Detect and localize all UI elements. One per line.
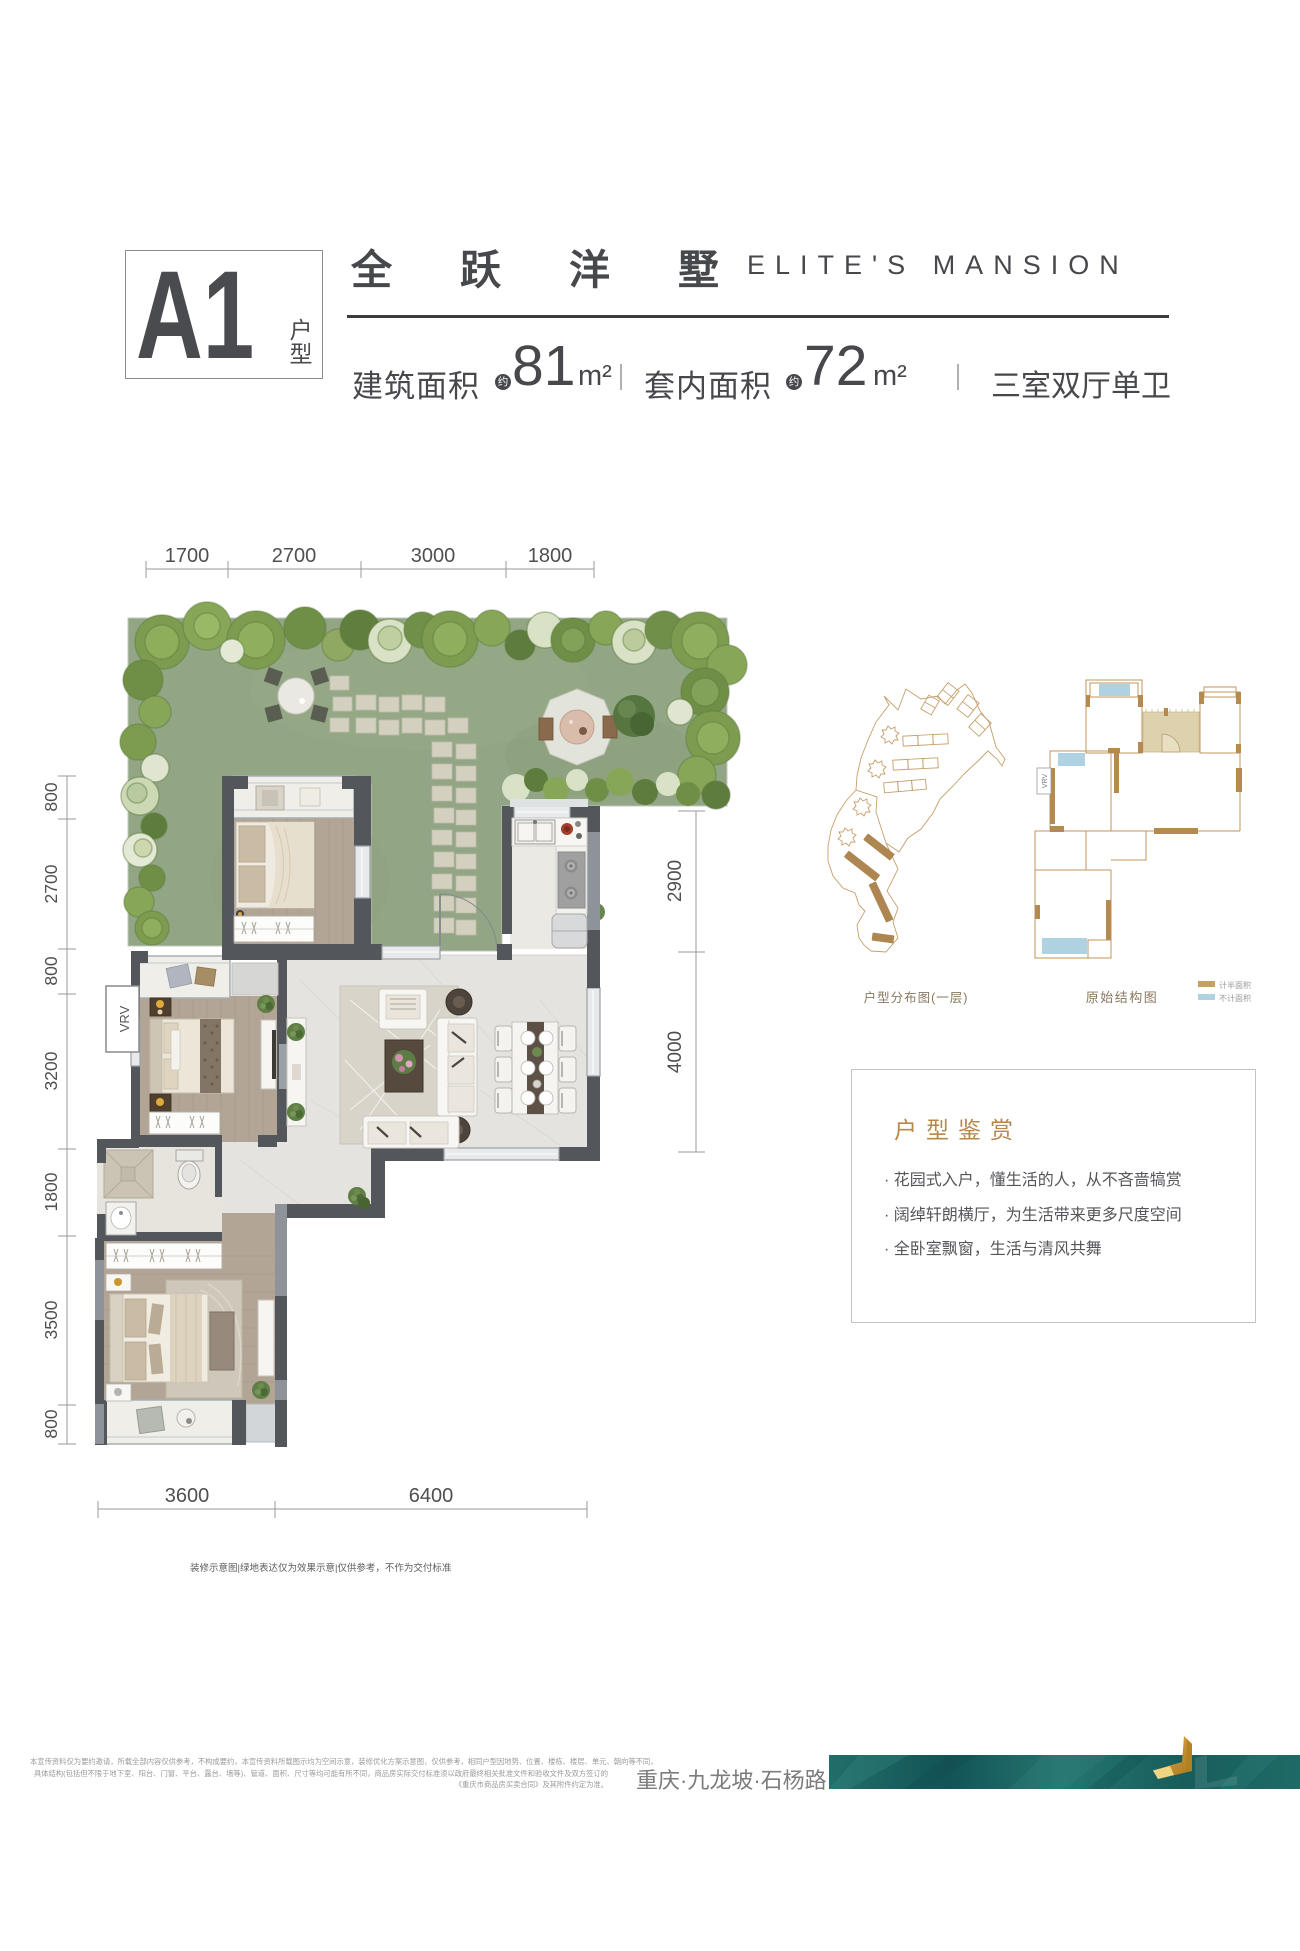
- svg-text:1800: 1800: [528, 545, 573, 567]
- svg-text:800: 800: [41, 956, 61, 985]
- svg-text:计半面积: 计半面积: [1219, 980, 1251, 990]
- svg-text:3600: 3600: [165, 1485, 210, 1507]
- svg-text:3500: 3500: [41, 1300, 61, 1339]
- svg-text:VRV: VRV: [117, 1005, 132, 1032]
- svg-text:800: 800: [41, 782, 61, 811]
- svg-text:3000: 3000: [411, 545, 456, 567]
- svg-text:1700: 1700: [165, 545, 210, 567]
- svg-text:6400: 6400: [409, 1485, 454, 1507]
- svg-text:1800: 1800: [41, 1172, 61, 1211]
- svg-text:2700: 2700: [272, 545, 317, 567]
- svg-text:原始结构图: 原始结构图: [1086, 990, 1159, 1005]
- svg-text:户型分布图(一层): 户型分布图(一层): [864, 990, 969, 1005]
- svg-text:不计面积: 不计面积: [1219, 993, 1251, 1003]
- svg-text:3200: 3200: [41, 1051, 61, 1090]
- svg-text:2700: 2700: [41, 864, 61, 903]
- svg-text:VRV: VRV: [1042, 774, 1049, 789]
- svg-text:2900: 2900: [665, 860, 686, 902]
- svg-text:4000: 4000: [665, 1031, 686, 1073]
- svg-text:800: 800: [41, 1409, 61, 1438]
